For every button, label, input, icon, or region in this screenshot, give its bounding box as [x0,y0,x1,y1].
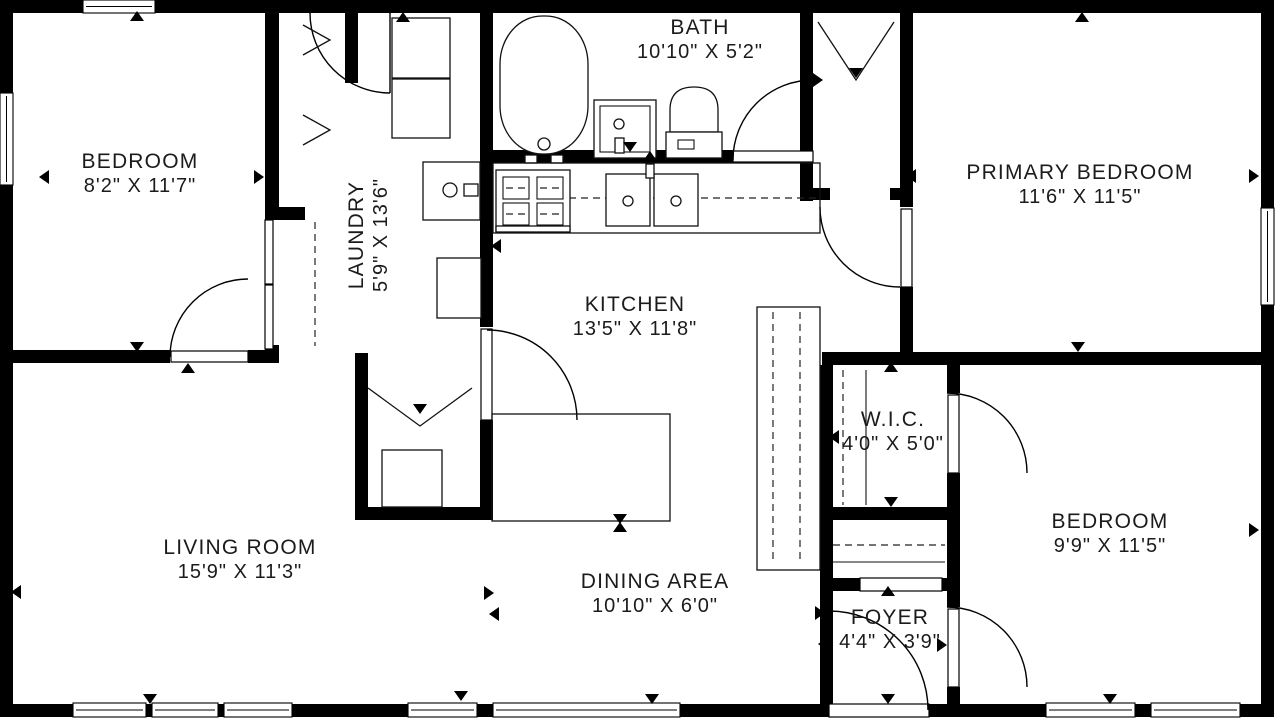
svg-text:KITCHEN: KITCHEN [585,293,686,316]
window-living-bottom [73,703,292,717]
kitchen-stove [496,170,570,232]
room-label-dining-area: DINING AREA10'10" X 6'0" [581,570,730,617]
svg-text:5'9" X 13'6": 5'9" X 13'6" [370,178,392,292]
svg-text:FOYER: FOYER [851,606,929,629]
dimension-marker [181,363,195,373]
door-primary-bedroom [820,207,912,287]
dimension-marker [813,73,823,87]
svg-text:BEDROOM: BEDROOM [82,150,199,173]
room-label-wic: W.I.C.4'0" X 5'0" [842,408,944,455]
svg-text:W.I.C.: W.I.C. [861,408,925,431]
svg-text:10'10" X 5'2": 10'10" X 5'2" [637,41,763,63]
dimension-marker [489,607,499,621]
room-label-primary-bedroom: PRIMARY BEDROOM11'6" X 11'5" [966,161,1193,208]
room-label-laundry: LAUNDRY5'9" X 13'6" [345,178,392,292]
window-primary-right [1261,208,1274,305]
svg-text:8'2" X 11'7": 8'2" X 11'7" [84,175,196,197]
svg-text:4'4" X 3'9": 4'4" X 3'9" [839,631,941,653]
room-label-kitchen: KITCHEN13'5" X 11'8" [573,293,698,340]
door-hall-closet-opening [860,578,942,591]
dimension-marker [39,170,49,184]
window-bedroom1-left [0,93,13,185]
dimension-marker [254,170,264,184]
bathroom-sink [594,100,656,158]
floor-plan-drawing: BEDROOM8'2" X 11'7"BATH10'10" X 5'2"PRIM… [0,0,1280,720]
door-bedroom1 [170,279,248,362]
svg-text:DINING AREA: DINING AREA [581,570,730,593]
room-label-living-room: LIVING ROOM15'9" X 11'3" [163,536,316,583]
svg-text:10'10" X 6'0": 10'10" X 6'0" [592,595,718,617]
svg-text:15'9" X 11'3": 15'9" X 11'3" [178,561,303,583]
svg-text:LAUNDRY: LAUNDRY [345,181,368,289]
utility-box [437,258,481,318]
room-label-bath: BATH10'10" X 5'2" [637,16,763,63]
window-bedroom1-top [83,0,155,13]
room-label-foyer: FOYER4'4" X 3'9" [839,606,941,653]
washer-dryer [392,18,450,138]
toilet [666,87,722,158]
dimension-marker [1075,12,1089,22]
door-wic [947,393,1027,473]
dimension-marker [1071,342,1085,352]
dimension-marker [413,404,427,414]
floor-plan-page: BEDROOM8'2" X 11'7"BATH10'10" X 5'2"PRIM… [0,0,1280,720]
door-kitchen [481,329,577,420]
svg-text:13'5" X 11'8": 13'5" X 11'8" [573,318,698,340]
hall-closet-rod [833,545,945,562]
room-label-bedroom-1: BEDROOM8'2" X 11'7" [82,150,199,197]
svg-text:LIVING ROOM: LIVING ROOM [163,536,316,559]
svg-text:BATH: BATH [670,16,729,39]
svg-text:PRIMARY BEDROOM: PRIMARY BEDROOM [966,161,1193,184]
door-bedroom2 [947,607,1027,687]
door-bedroom1-closet [265,220,273,349]
dimension-marker [1249,169,1259,183]
dimension-marker [484,586,494,600]
window-dining-bottom [408,703,680,717]
dimension-marker [454,691,468,701]
dimension-marker [881,694,895,704]
water-heater [423,162,480,220]
dimension-marker [884,497,898,507]
kitchen-cabinet [757,307,820,570]
svg-text:9'9" X 11'5": 9'9" X 11'5" [1054,535,1166,557]
dimension-marker [396,12,410,22]
closet-shelf [382,450,442,507]
dining-table [492,414,670,521]
svg-text:4'0" X 5'0": 4'0" X 5'0" [842,433,944,455]
svg-text:11'6" X 11'5": 11'6" X 11'5" [1018,186,1141,208]
dimension-marker [1249,523,1259,537]
room-label-bedroom-2: BEDROOM9'9" X 11'5" [1052,510,1169,557]
dimension-marker [613,522,627,532]
bathtub [500,16,588,163]
svg-text:BEDROOM: BEDROOM [1052,510,1169,533]
kitchen-sink [606,164,698,226]
